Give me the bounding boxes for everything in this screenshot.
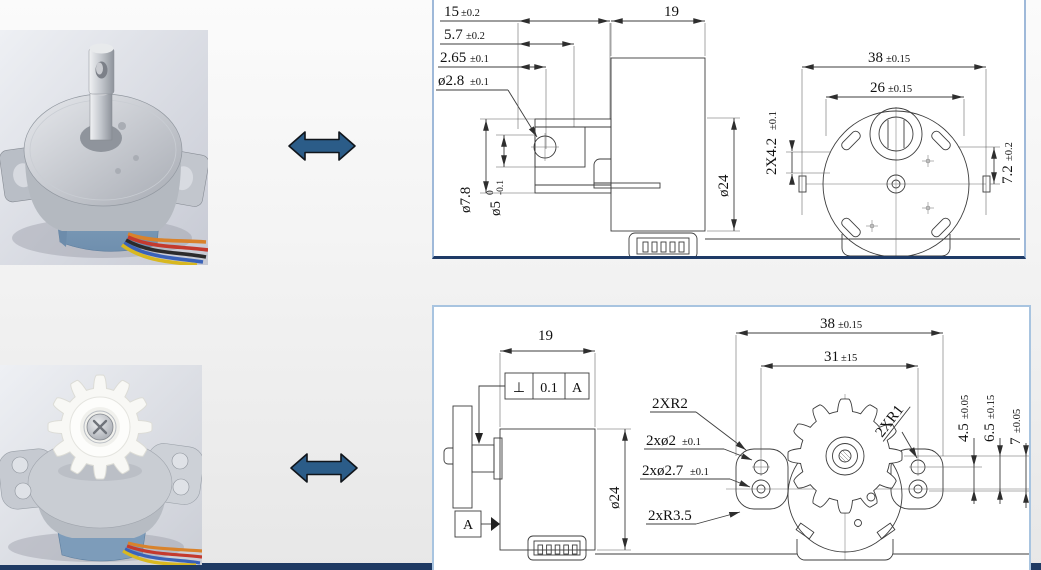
dim-4-5: 4.5	[956, 423, 972, 442]
datum-a-flag: A	[455, 511, 500, 537]
perpendicularity-tolerance-frame: ⊥ 0.1 A	[475, 373, 589, 444]
dim-15: 15	[444, 4, 459, 20]
svg-text:±0.1: ±0.1	[470, 77, 489, 88]
top-double-arrow-icon	[287, 128, 357, 169]
svg-text:±0.2: ±0.2	[466, 31, 485, 42]
svg-text:±0.1: ±0.1	[768, 111, 779, 130]
dim-38: 38	[820, 316, 835, 332]
dim-6-5: 6.5	[982, 423, 998, 442]
dim-19: 19	[664, 4, 679, 20]
label-2xd2: 2xø2	[646, 433, 676, 449]
svg-text:A: A	[463, 518, 474, 533]
svg-text:±15: ±15	[841, 353, 857, 364]
svg-text:-0.1: -0.1	[496, 180, 506, 195]
technical-drawing-shaft-motor: 15 ±0.2 5.7 ±0.2 2.65 ±0.1 ø2.8 ±0.1	[434, 0, 1024, 256]
connector	[629, 233, 697, 256]
dim-19: 19	[538, 328, 553, 344]
gear-motor-photo-illustration	[0, 365, 202, 565]
dim-38: 38	[868, 50, 883, 66]
slide-canvas: 15 ±0.2 5.7 ±0.2 2.65 ±0.1 ø2.8 ±0.1	[0, 0, 1041, 570]
product-photo-gear-motor	[0, 365, 202, 565]
shaft-motor-photo-illustration	[0, 30, 208, 265]
label-2xr3-5: 2xR3.5	[648, 508, 692, 524]
dim-2x4-2: 2X4.2	[764, 138, 780, 175]
svg-text:0.1: 0.1	[540, 381, 558, 396]
side-view-shaft-motor	[531, 58, 705, 256]
dim-7: 7	[1008, 437, 1024, 445]
dim-31: 31	[824, 349, 839, 365]
label-2xd2-7: 2xø2.7	[642, 463, 684, 479]
drawing-panel-gear-motor: 19 ⊥ 0.1 A	[432, 305, 1031, 570]
svg-text:±0.15: ±0.15	[838, 320, 862, 331]
svg-text:±0.1: ±0.1	[470, 54, 489, 65]
front-view-shaft-motor	[799, 107, 990, 256]
svg-text:±0.05: ±0.05	[960, 395, 971, 419]
svg-text:A: A	[572, 381, 583, 396]
left-mounting-ear	[736, 449, 788, 509]
svg-text:0: 0	[486, 190, 496, 195]
dim-24: ø24	[607, 486, 623, 509]
svg-text:±0.1: ±0.1	[690, 467, 709, 478]
svg-text:±0.15: ±0.15	[888, 84, 912, 95]
product-photo-shaft-motor	[0, 30, 208, 265]
svg-text:±0.2: ±0.2	[1004, 142, 1015, 161]
dim-shaft-hole: ø2.8	[438, 73, 464, 89]
svg-text:±0.15: ±0.15	[986, 395, 997, 419]
svg-text:±0.05: ±0.05	[1012, 409, 1023, 433]
dim-7-2: 7.2	[1000, 165, 1016, 184]
perpendicularity-symbol: ⊥	[513, 381, 525, 396]
bottom-double-arrow-icon	[289, 450, 359, 491]
svg-text:±0.2: ±0.2	[461, 8, 480, 19]
svg-text:±0.1: ±0.1	[682, 437, 701, 448]
dim-5-7: 5.7	[444, 27, 463, 43]
drawing-panel-shaft-motor: 15 ±0.2 5.7 ±0.2 2.65 ±0.1 ø2.8 ±0.1	[432, 0, 1026, 259]
screw-position-markers	[866, 155, 934, 232]
dim-7-8: ø7.8	[458, 187, 474, 213]
dim-26: 26	[870, 80, 886, 96]
dim-24: ø24	[716, 174, 732, 197]
metal-shaft	[89, 44, 114, 141]
label-2xr2: 2XR2	[652, 396, 688, 412]
dim-5: ø5	[488, 201, 504, 216]
svg-text:±0.15: ±0.15	[886, 54, 910, 65]
technical-drawing-gear-motor: 19 ⊥ 0.1 A	[434, 307, 1029, 570]
dim-2-65: 2.65	[440, 50, 466, 66]
